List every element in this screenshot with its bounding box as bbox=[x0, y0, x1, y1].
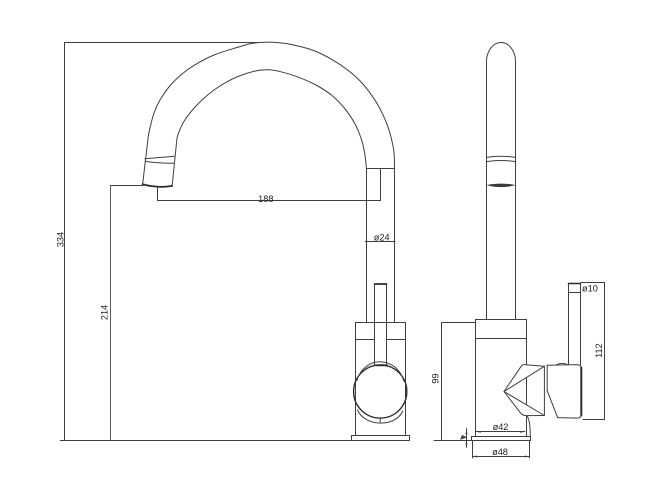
svg-text:334: 334 bbox=[55, 232, 65, 247]
svg-text:112: 112 bbox=[594, 343, 604, 358]
svg-text:188: 188 bbox=[258, 194, 273, 204]
svg-text:ø24: ø24 bbox=[374, 233, 390, 243]
svg-text:ø42: ø42 bbox=[493, 422, 509, 432]
svg-text:ø10: ø10 bbox=[582, 283, 598, 293]
svg-text:ø48: ø48 bbox=[492, 447, 508, 457]
svg-text:214: 214 bbox=[99, 305, 109, 320]
svg-text:99: 99 bbox=[431, 373, 441, 383]
